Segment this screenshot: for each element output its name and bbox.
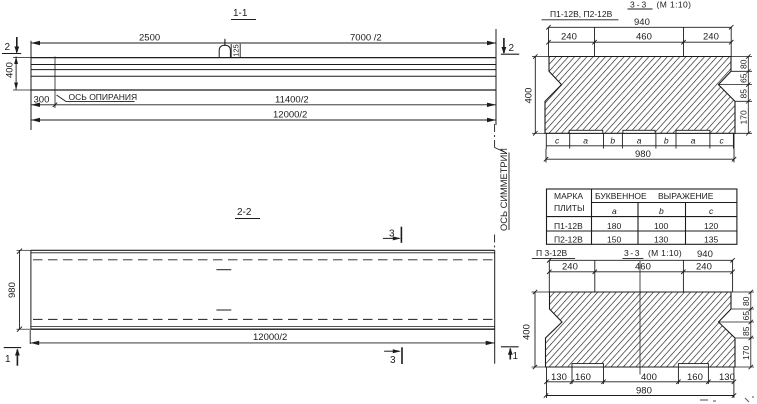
svg-text:П 3-12В: П 3-12В bbox=[536, 248, 567, 258]
svg-text:П1-12В: П1-12В bbox=[554, 221, 583, 231]
svg-text:3: 3 bbox=[389, 229, 395, 240]
svg-text:БУКВЕННОЕ: БУКВЕННОЕ bbox=[595, 191, 647, 201]
svg-text:МАРКА: МАРКА bbox=[554, 191, 583, 201]
svg-text:240: 240 bbox=[561, 32, 577, 43]
svg-text:П2-12В: П2-12В bbox=[554, 235, 583, 245]
svg-text:80: 80 bbox=[741, 296, 751, 306]
svg-text:400: 400 bbox=[522, 324, 533, 340]
svg-text:7000 /2: 7000 /2 bbox=[350, 33, 382, 44]
svg-text:180: 180 bbox=[607, 221, 621, 231]
svg-text:(М 1:10): (М 1:10) bbox=[657, 0, 692, 10]
svg-text:1: 1 bbox=[5, 354, 11, 365]
svg-text:460: 460 bbox=[636, 32, 652, 43]
svg-text:а: а bbox=[637, 136, 642, 146]
svg-text:12000/2: 12000/2 bbox=[253, 332, 287, 343]
svg-text:240: 240 bbox=[703, 32, 719, 43]
svg-text:460: 460 bbox=[635, 262, 651, 273]
svg-text:240: 240 bbox=[696, 262, 712, 273]
svg-text:3-3: 3-3 bbox=[630, 0, 648, 10]
svg-text:П1-12В, П2-12В: П1-12В, П2-12В bbox=[550, 9, 613, 19]
svg-text:ВЫРАЖЕНИЕ: ВЫРАЖЕНИЕ bbox=[658, 191, 714, 201]
svg-text:2: 2 bbox=[5, 42, 11, 53]
svg-text:980: 980 bbox=[7, 282, 18, 298]
svg-text:а: а bbox=[691, 136, 696, 146]
svg-text:160: 160 bbox=[575, 372, 591, 383]
svg-text:ПЛИТЫ: ПЛИТЫ bbox=[554, 203, 585, 213]
svg-text:b: b bbox=[659, 206, 664, 216]
svg-text:135: 135 bbox=[704, 235, 718, 245]
svg-text:2-2: 2-2 bbox=[237, 207, 252, 218]
svg-text:1-1: 1-1 bbox=[233, 8, 248, 19]
svg-text:12000/2: 12000/2 bbox=[273, 110, 307, 121]
svg-text:160: 160 bbox=[687, 372, 703, 383]
svg-text:ОСЬ ОПИРАНИЯ: ОСЬ ОПИРАНИЯ bbox=[69, 92, 138, 102]
svg-text:150: 150 bbox=[607, 235, 621, 245]
svg-text:2: 2 bbox=[509, 43, 515, 54]
svg-text:170: 170 bbox=[741, 346, 751, 360]
svg-text:а: а bbox=[583, 136, 588, 146]
svg-text:400: 400 bbox=[5, 62, 16, 78]
svg-text:85: 85 bbox=[741, 326, 751, 336]
svg-text:980: 980 bbox=[635, 149, 651, 160]
svg-text:130: 130 bbox=[551, 372, 567, 383]
svg-text:980: 980 bbox=[636, 386, 652, 397]
svg-text:300: 300 bbox=[34, 95, 50, 106]
svg-text:120: 120 bbox=[704, 221, 718, 231]
svg-text:170: 170 bbox=[739, 110, 749, 124]
svg-text:940: 940 bbox=[697, 249, 713, 260]
svg-text:(М 1:10): (М 1:10) bbox=[648, 248, 682, 258]
svg-text:65: 65 bbox=[739, 73, 749, 83]
svg-text:3-3: 3-3 bbox=[624, 248, 641, 258]
svg-text:а: а bbox=[612, 206, 617, 216]
svg-text:125: 125 bbox=[231, 44, 240, 57]
svg-text:65: 65 bbox=[741, 311, 751, 321]
svg-text:ОСЬ СИММЕТРИИ: ОСЬ СИММЕТРИИ bbox=[499, 148, 509, 231]
svg-text:1: 1 bbox=[513, 351, 519, 362]
svg-text:130: 130 bbox=[719, 372, 735, 383]
svg-text:940: 940 bbox=[634, 17, 650, 28]
svg-text:80: 80 bbox=[739, 59, 749, 69]
svg-text:b: b bbox=[610, 136, 615, 146]
svg-text:b: b bbox=[664, 136, 669, 146]
svg-text:11400/2: 11400/2 bbox=[275, 95, 309, 106]
svg-text:130: 130 bbox=[654, 235, 668, 245]
svg-text:3: 3 bbox=[390, 355, 396, 366]
svg-text:400: 400 bbox=[641, 372, 657, 383]
svg-text:240: 240 bbox=[562, 262, 578, 273]
svg-text:2500: 2500 bbox=[139, 33, 160, 44]
svg-text:85: 85 bbox=[739, 89, 749, 99]
svg-text:100: 100 bbox=[654, 221, 668, 231]
svg-text:400: 400 bbox=[524, 88, 535, 104]
